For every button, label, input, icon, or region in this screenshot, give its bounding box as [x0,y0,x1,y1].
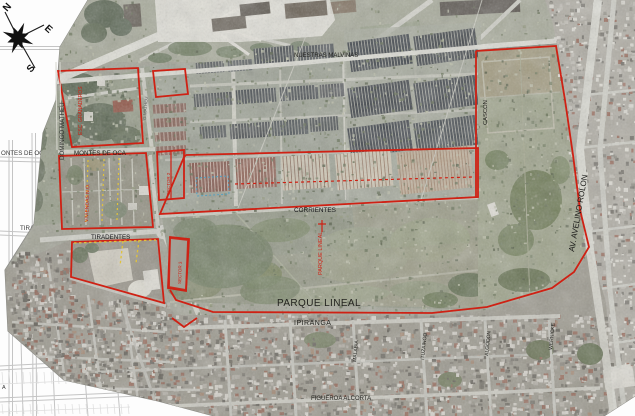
svg-text:A: A [2,385,6,391]
